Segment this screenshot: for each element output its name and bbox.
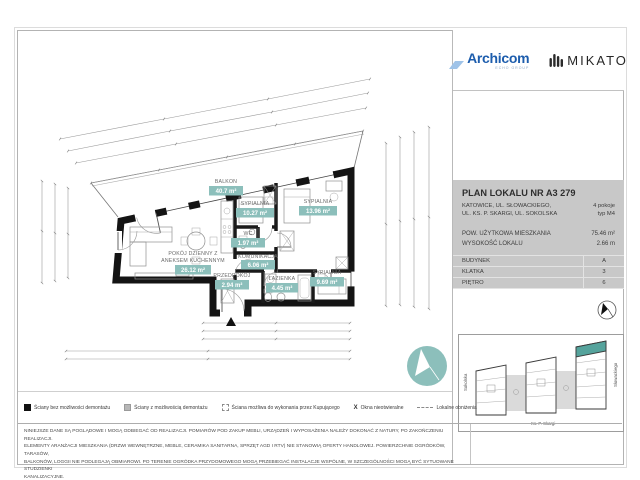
legend-swatch-black [24,404,31,411]
legend-swatch-gray [124,404,131,411]
svg-text:SYPIALNIA: SYPIALNIA [241,201,270,207]
svg-text:BALKON: BALKON [215,179,237,185]
room-label-lazienka: ŁAZIENKA 4.45 m² [266,276,298,293]
svg-text:PRZEDPOKÓJ: PRZEDPOKÓJ [213,272,250,279]
north-arrow-small-icon [596,298,618,322]
archicom-wordmark: Archicom [467,51,529,65]
svg-text:13.96 m²: 13.96 m² [306,208,330,215]
svg-text:ŁAZIENKA: ŁAZIENKA [269,276,296,282]
svg-text:SYPIALNIA: SYPIALNIA [304,199,333,205]
disclaimer-line: ELEMENTY ARANŻACJI MIESZKANIA (DRZWI WEW… [24,443,458,458]
plan-sheet: BALKON 40.7 m² SYPIALNIA 10.27 m² SYPIAL… [0,0,640,480]
svg-text:1.97 m²: 1.97 m² [238,240,259,247]
legend: Ściany bez możliwości demontażu Ściany z… [18,391,452,423]
north-arrow-icon [407,346,447,386]
courtyard-1 [506,375,526,411]
area-row: POW. UŻYTKOWA MIESZKANIA 75.46 m² [462,231,615,237]
plan-title: PLAN LOKALU NR A3 279 [462,188,615,198]
disclaimer-text: NINIEJSZE DANE SĄ POGLĄDOWE I MOGĄ ODBIE… [18,424,464,464]
svg-text:40.7 m²: 40.7 m² [216,188,237,195]
siteplan: Sokolska Słowackiego Ks. P. Skargi [458,334,624,432]
room-label-sypialnia-1: SYPIALNIA 10.27 m² [236,201,274,218]
right-wall-opening [346,271,356,287]
svg-text:26.12 m²: 26.12 m² [181,267,205,274]
room-label-komunikacja: KOMUNIKACJA 6.06 m² [238,254,278,270]
street-label-left: Sokolska [463,373,468,391]
svg-text:WC: WC [243,231,252,237]
disclaimer-line: BALKONÓW, LOGGII NIE PODLEGAJĄ OBMIAROWI… [24,459,458,474]
disclaimer-line: KANALIZACYJNE. [24,474,458,480]
svg-text:9.69 m²: 9.69 m² [317,279,338,286]
disclaimer: NINIEJSZE DANE SĄ POGLĄDOWE I MOGĄ ODBIE… [18,423,622,464]
archicom-subtext: ECHO GROUP [467,66,529,70]
siteplan-svg: Sokolska Słowackiego Ks. P. Skargi [459,335,623,431]
svg-text:ANEKSEM KUCHENNYM: ANEKSEM KUCHENNYM [161,258,225,264]
room-label-balkon: BALKON 40.7 m² [209,179,243,196]
legend-item-buyer-wall: Ściana możliwa do wykonania przez Kupują… [222,404,340,411]
details-table: BUDYNEK A KLATKA 3 PIĘTRO 6 [453,255,624,289]
svg-text:6.06 m²: 6.06 m² [248,262,269,269]
logo-cell: Archicom ECHO GROUP MIKATO [453,30,624,91]
height-row: WYSOKOŚĆ LOKALU 2.66 m [462,241,615,247]
floor-plan-svg: BALKON 40.7 m² SYPIALNIA 10.27 m² SYPIAL… [18,31,452,391]
svg-text:SYPIALNIA: SYPIALNIA [313,270,342,276]
detail-row-klatka: KLATKA 3 [453,267,624,278]
detail-row-budynek: BUDYNEK A [453,256,624,267]
svg-text:KOMUNIKACJA: KOMUNIKACJA [238,254,278,260]
disclaimer-line: NINIEJSZE DANE SĄ POGLĄDOWE I MOGĄ ODBIE… [24,428,458,443]
svg-text:4.45 m²: 4.45 m² [272,285,293,292]
mikato-wordmark: MIKATO [567,54,628,67]
legend-item-solid-walls: Ściany bez możliwości demontażu [24,404,110,411]
archicom-swoosh-icon [449,58,465,70]
entrance-marker [226,317,236,326]
title-block: PLAN LOKALU NR A3 279 KATOWICE, UL. SŁOW… [453,180,624,289]
street-label-right: Słowackiego [613,362,618,387]
disclaimer-divider [470,424,471,464]
room-label-sypialnia-3: SYPIALNIA 9.69 m² [310,270,344,287]
building-outline-2 [526,357,556,413]
room-label-przedpokoj: PRZEDPOKÓJ 2.94 m² [213,272,250,290]
plan-address: KATOWICE, UL. SŁOWACKIEGO, UL. KS. P. SK… [462,202,557,219]
mikato-logo: MIKATO [549,52,628,68]
legend-symbol-x: X [354,405,358,411]
svg-text:10.27 m²: 10.27 m² [243,210,267,217]
right-column: Archicom ECHO GROUP MIKATO PLAN LOKALU N… [452,30,624,463]
legend-item-removable-walls: Ściany z możliwością demontażu [124,404,207,411]
legend-swatch-dashed [222,404,229,411]
legend-item-fixed-windows: X Okna nieotwieralne [354,405,404,411]
legend-swatch-dashed-line [417,407,433,408]
room-label-sypialnia-2: SYPIALNIA 13.96 m² [299,199,337,216]
archicom-logo: Archicom ECHO GROUP [449,51,529,70]
mikato-icon [549,52,564,68]
building-outline-1 [476,365,506,415]
floor-plan: BALKON 40.7 m² SYPIALNIA 10.27 m² SYPIAL… [18,31,452,391]
courtyard-2 [556,371,576,409]
legend-item-lowered-ceiling: Lokalne obniżenia [417,405,476,411]
svg-text:POKÓJ DZIENNY Z: POKÓJ DZIENNY Z [168,250,217,257]
svg-text:2.94 m²: 2.94 m² [222,282,243,289]
detail-row-pietro: PIĘTRO 6 [453,278,624,289]
unit-type: 4 pokoje typ M4 [593,202,615,219]
